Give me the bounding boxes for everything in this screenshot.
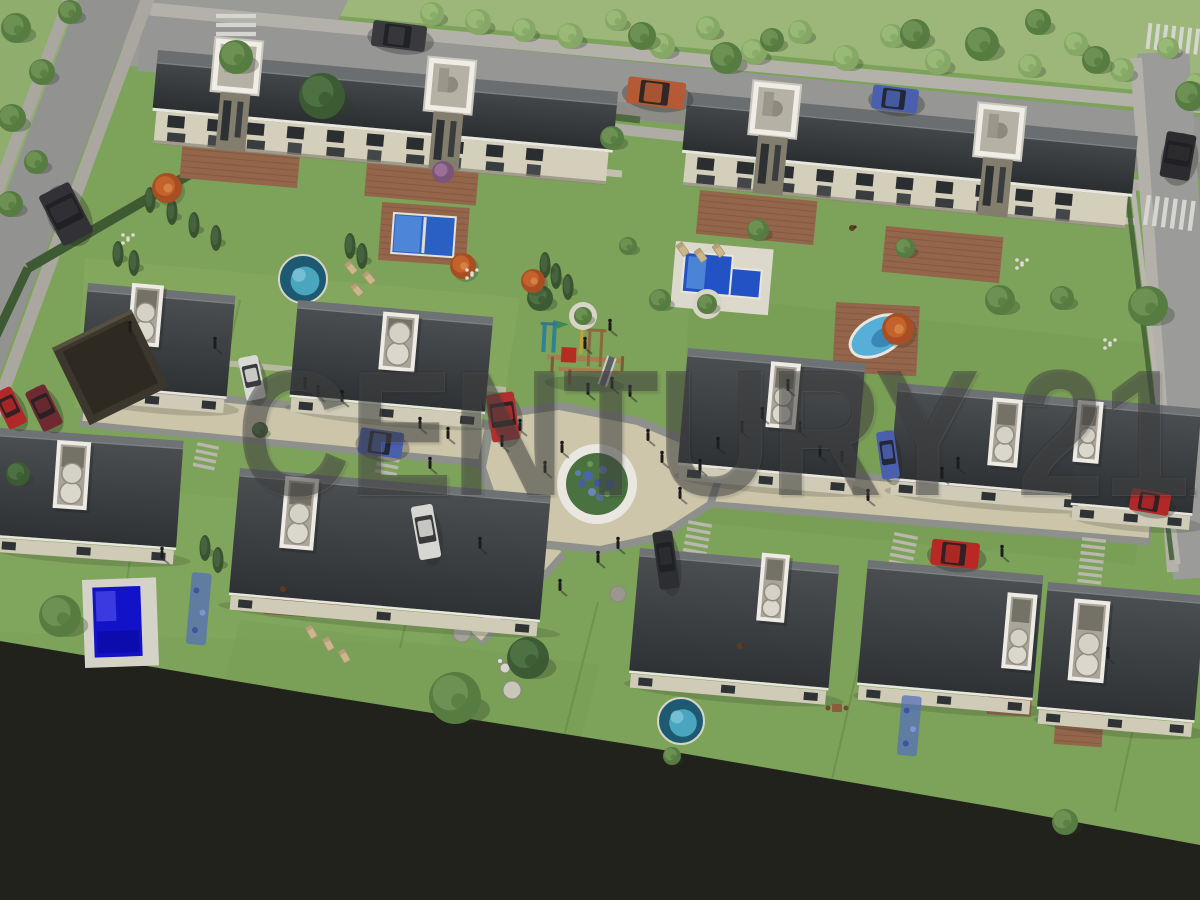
skylight-court — [1067, 598, 1113, 686]
house — [673, 348, 880, 503]
skylight-court — [756, 553, 793, 626]
crosswalk — [216, 14, 256, 18]
aerial-render-image: CENTURY 21. — [0, 0, 1200, 900]
deep-blue-pool — [82, 577, 159, 668]
house — [1033, 582, 1200, 745]
scene-canvas — [0, 0, 1200, 900]
skylight-court — [1072, 400, 1107, 467]
house — [852, 560, 1058, 722]
skylight-court — [1001, 592, 1041, 674]
round-kiddie-pool — [658, 698, 704, 744]
crosswalk — [216, 23, 256, 27]
house — [1067, 398, 1200, 537]
skylight-court — [52, 440, 94, 513]
skylight-court — [279, 476, 322, 554]
crosswalk — [216, 32, 256, 36]
skylight-court — [765, 361, 804, 433]
house — [284, 300, 509, 436]
skylight-court — [987, 397, 1026, 471]
round-kiddie-pool — [279, 255, 327, 303]
skylight-court — [378, 311, 422, 375]
rectangular-pool — [391, 213, 456, 257]
